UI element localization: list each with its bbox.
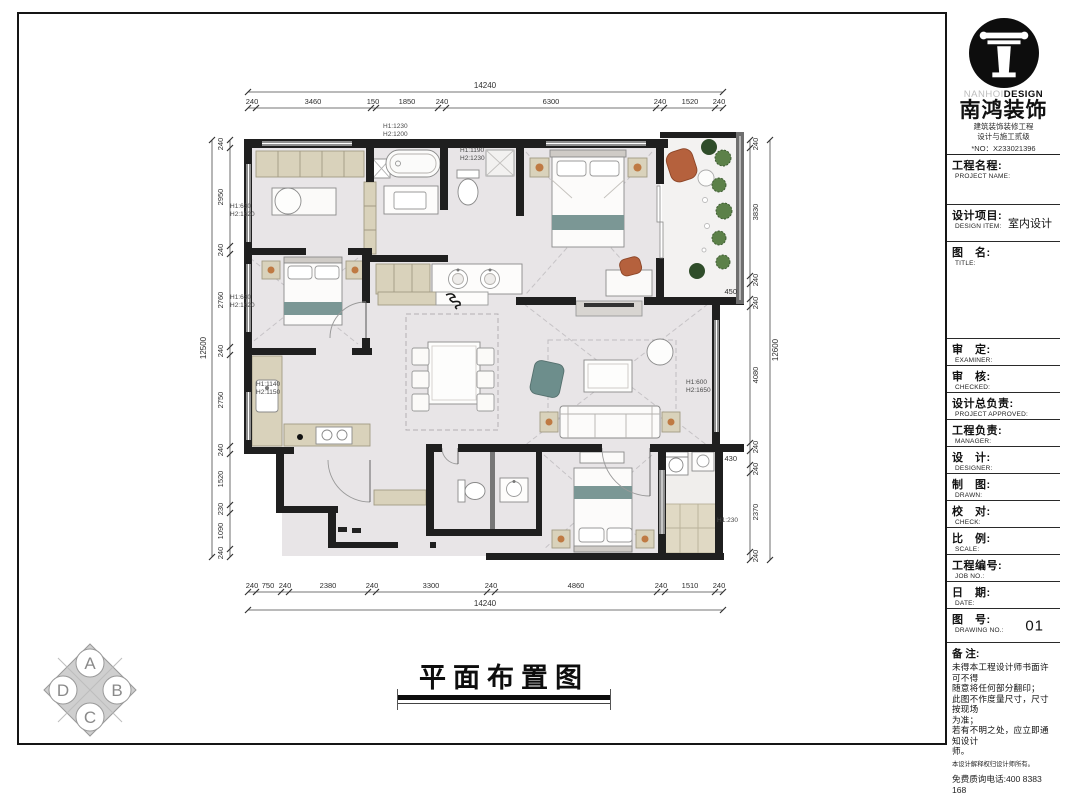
svg-text:240: 240	[751, 463, 760, 476]
svg-text:H1:1230: H1:1230	[383, 123, 408, 130]
svg-text:430: 430	[724, 454, 737, 463]
svg-text:3460: 3460	[305, 97, 322, 106]
row-project-approved: 设计总负责: PROJECT APPROVED:	[947, 393, 1060, 420]
svg-text:H2:1620: H2:1620	[230, 302, 255, 309]
row-scale: 比 例: SCALE:	[947, 528, 1060, 555]
svg-text:240: 240	[366, 581, 379, 590]
svg-text:1520: 1520	[216, 471, 225, 488]
sheet-title-underline	[398, 695, 610, 704]
row-title: 图 名: TITLE:	[947, 242, 1060, 339]
sofa-icon	[560, 406, 660, 438]
mark-letter-a: A	[84, 654, 96, 673]
drawing-no-value: 01	[1025, 617, 1044, 634]
svg-text:240: 240	[751, 550, 760, 563]
dining-chair-icon	[477, 394, 494, 411]
svg-text:1510: 1510	[682, 581, 699, 590]
dining-chair-icon	[412, 348, 429, 365]
brand-cert-line1: 建筑装饰装修工程	[947, 122, 1060, 132]
svg-text:230: 230	[216, 503, 225, 516]
row-drawn: 制 图: DRAWN:	[947, 474, 1060, 501]
cabinet-icon	[364, 182, 376, 254]
dining-table-icon	[428, 342, 480, 404]
coffee-table-icon	[584, 360, 632, 392]
bed-headboard	[550, 150, 626, 157]
svg-text:H2:1230: H2:1230	[460, 155, 485, 162]
brand-cert-no: *NO：X233021396	[947, 143, 1060, 154]
row-date: 日 期: DATE:	[947, 582, 1060, 609]
pillow-icon	[288, 266, 312, 279]
svg-text:2760: 2760	[216, 292, 225, 309]
svg-text:240: 240	[713, 581, 726, 590]
svg-text:2750: 2750	[216, 392, 225, 409]
pillow-icon	[590, 161, 619, 176]
svg-text:240: 240	[279, 581, 292, 590]
svg-text:1850: 1850	[399, 97, 416, 106]
washer-icon	[664, 452, 688, 475]
svg-text:H1:600: H1:600	[686, 379, 707, 386]
svg-text:H1:1190: H1:1190	[460, 147, 484, 154]
svg-text:1090: 1090	[216, 523, 225, 540]
svg-text:6300: 6300	[543, 97, 560, 106]
row-check: 校 对: CHECK:	[947, 501, 1060, 528]
row-examiner: 审 定: EXAMINER:	[947, 339, 1060, 366]
svg-text:H2:1200: H2:1200	[383, 131, 408, 138]
armchair-icon	[529, 359, 565, 398]
brand-cert-line2: 设计与施工贰级	[947, 132, 1060, 142]
svg-text:240: 240	[751, 297, 760, 310]
svg-text:240: 240	[216, 345, 225, 358]
floor-plan-drawing: 14240 240 3460 150 1850 240 6300 240 152…	[0, 0, 1080, 756]
svg-text:240: 240	[216, 444, 225, 457]
toilet-icon	[457, 170, 479, 178]
svg-text:450: 450	[724, 287, 737, 296]
pillow-icon	[557, 161, 586, 176]
svg-text:H2:1620: H2:1620	[230, 211, 255, 218]
row-drawing-no: 图 号: DRAWING NO.: 01	[947, 609, 1060, 643]
svg-text:1520: 1520	[682, 97, 699, 106]
shoe-cabinet-icon	[374, 490, 426, 505]
sheet-title: 平面布置图	[398, 656, 610, 695]
svg-text:12500: 12500	[199, 336, 208, 359]
svg-text:H2:1650: H2:1650	[686, 387, 711, 394]
svg-text:14240: 14240	[474, 599, 497, 608]
bed-headboard	[574, 546, 632, 552]
row-manager: 工程负责: MANAGER:	[947, 420, 1060, 447]
toilet-icon	[458, 480, 465, 502]
row-checked: 审 核: CHECKED:	[947, 366, 1060, 393]
bed-headboard	[284, 257, 342, 263]
svg-text:240: 240	[246, 97, 259, 106]
title-block: NANHOIDESIGN 南鸿装饰 建筑装饰装修工程 设计与施工贰级 *NO：X…	[945, 12, 1060, 745]
svg-text:3830: 3830	[751, 204, 760, 221]
service-phone: 免费质询电话:400 8383 168	[952, 773, 1055, 795]
pillow-icon	[315, 266, 339, 279]
svg-text:240: 240	[216, 547, 225, 560]
row-design-item: 设计项目: DESIGN ITEM: 室内设计	[947, 205, 1060, 242]
row-designer: 设 计: DESIGNER:	[947, 447, 1060, 474]
sink-icon	[507, 482, 522, 497]
dining-chair-icon	[477, 371, 494, 388]
mark-letter-b: B	[111, 681, 122, 700]
svg-text:14240: 14240	[474, 81, 497, 90]
kettle-icon	[297, 434, 303, 440]
mark-letter-d: D	[57, 681, 69, 700]
svg-text:150: 150	[367, 97, 380, 106]
corner-diamond-mark: A B C D	[44, 644, 136, 736]
svg-text:240: 240	[485, 581, 498, 590]
company-logo-icon	[969, 18, 1039, 88]
svg-text:240: 240	[216, 138, 225, 151]
svg-text:H2:1150: H2:1150	[256, 389, 280, 396]
svg-text:2950: 2950	[216, 189, 225, 206]
svg-text:4080: 4080	[751, 367, 760, 384]
svg-text:240: 240	[654, 97, 667, 106]
notes-block: 备 注: 未得本工程设计师书面许可不得 随意将任何部分翻印； 此图不作度量尺寸，…	[947, 643, 1060, 797]
partition-wall	[490, 452, 495, 530]
svg-text:H1:630: H1:630	[230, 203, 251, 210]
cabinet-icon	[376, 264, 430, 294]
svg-text:240: 240	[246, 581, 259, 590]
svg-text:240: 240	[216, 244, 225, 257]
blanket-stripe	[284, 302, 342, 315]
pillow-icon	[607, 528, 632, 542]
dining-chair-icon	[412, 394, 429, 411]
design-item-value: 室内设计	[1008, 215, 1052, 231]
svg-text:240: 240	[655, 581, 668, 590]
tv-icon	[584, 303, 634, 307]
row-project-name: 工程名程: PROJECT NAME:	[947, 155, 1060, 205]
svg-text:2380: 2380	[320, 581, 337, 590]
dining-chair-icon	[412, 371, 429, 388]
svg-text:4860: 4860	[568, 581, 585, 590]
row-job-no: 工程编号: JOB NO.:	[947, 555, 1060, 582]
pillow-icon	[579, 528, 604, 542]
svg-text:240: 240	[751, 274, 760, 287]
blanket-stripe	[552, 215, 624, 230]
svg-text:750: 750	[262, 581, 275, 590]
brand-name-cn: 南鸿装饰	[947, 100, 1060, 122]
side-table-icon	[698, 170, 714, 186]
svg-text:240: 240	[751, 138, 760, 151]
chair-icon	[275, 188, 301, 214]
dining-chair-icon	[477, 348, 494, 365]
svg-text:240: 240	[751, 441, 760, 454]
svg-text:3300: 3300	[423, 581, 440, 590]
double-sink-counter-icon	[432, 264, 522, 294]
company-logo-block: NANHOIDESIGN 南鸿装饰 建筑装饰装修工程 设计与施工贰级 *NO：X…	[947, 12, 1060, 155]
dims-top: 14240 240 3460 150 1850 240 6300 240 152…	[246, 81, 726, 106]
svg-text:H1:230: H1:230	[717, 517, 738, 524]
svg-text:240: 240	[713, 97, 726, 106]
svg-text:12600: 12600	[771, 338, 780, 361]
svg-text:2370: 2370	[751, 504, 760, 521]
doormat-icon	[338, 527, 347, 532]
tile-floor	[662, 504, 716, 553]
dining-area	[412, 342, 494, 411]
svg-text:240: 240	[436, 97, 449, 106]
svg-text:H1:1140: H1:1140	[256, 381, 280, 388]
mark-letter-c: C	[84, 708, 96, 727]
dims-bottom: 14240 240 750 240 2380 240 3300 240 4860…	[246, 581, 726, 608]
wardrobe-icon	[256, 151, 364, 177]
svg-text:H1:630: H1:630	[230, 294, 251, 301]
round-table-icon	[647, 339, 673, 365]
